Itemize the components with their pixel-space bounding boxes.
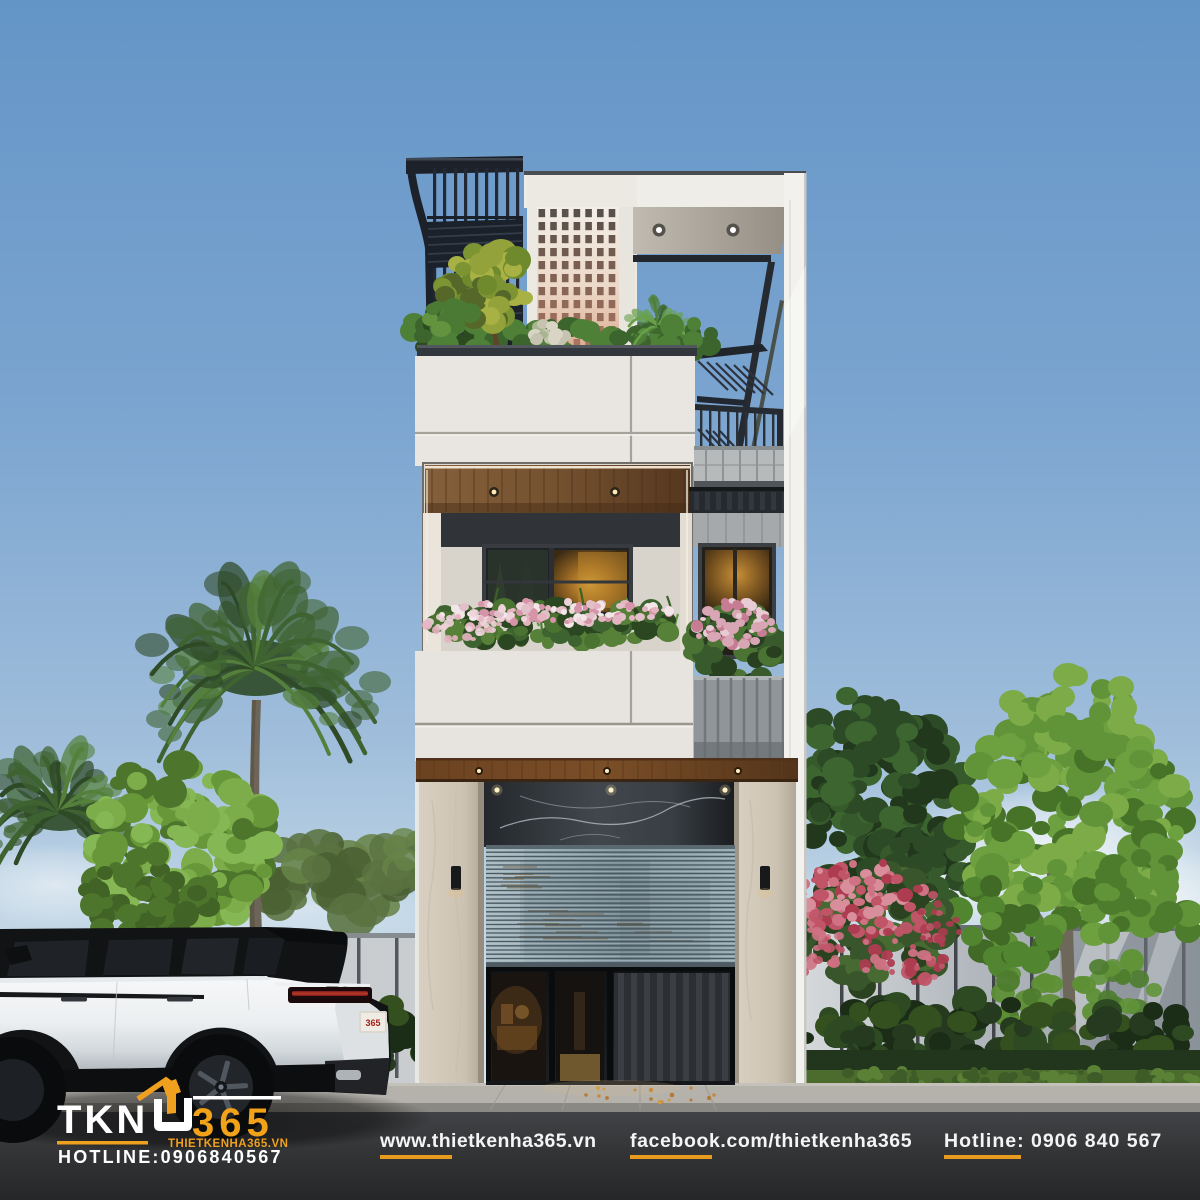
svg-text:www.thietkenha365.vn: www.thietkenha365.vn	[379, 1130, 596, 1152]
svg-text:365: 365	[365, 1018, 380, 1028]
svg-text:TKN: TKN	[57, 1098, 148, 1142]
svg-text:Hotline: 0906 840 567: Hotline: 0906 840 567	[944, 1130, 1162, 1152]
svg-text:facebook.com/thietkenha365: facebook.com/thietkenha365	[630, 1130, 912, 1152]
svg-text:HOTLINE:0906840567: HOTLINE:0906840567	[58, 1147, 283, 1167]
